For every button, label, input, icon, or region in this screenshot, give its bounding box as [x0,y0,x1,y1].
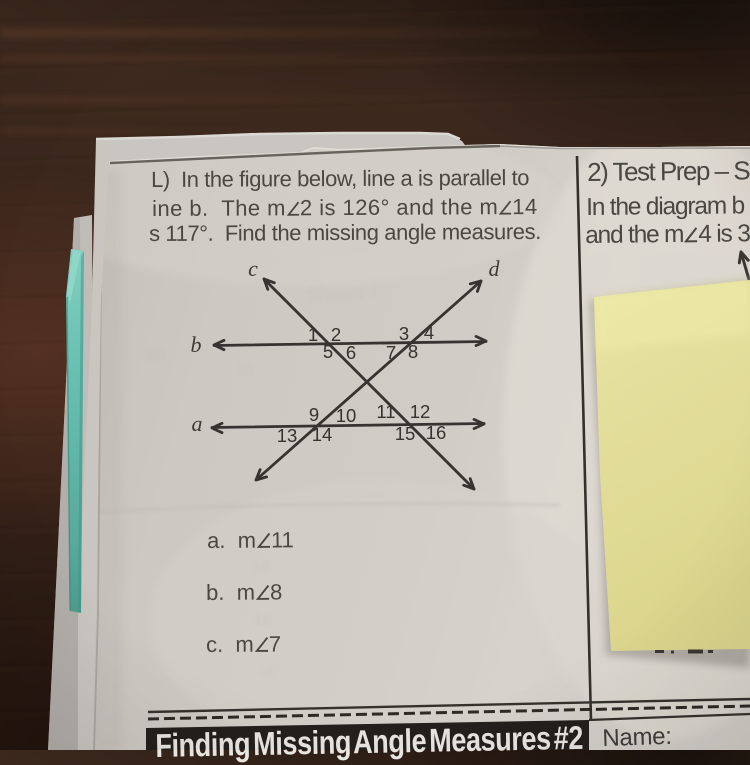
svg-text:9: 9 [309,404,319,425]
svg-text:13: 13 [277,425,298,446]
svg-text:a: a [192,411,203,436]
svg-text:c: c [248,256,258,281]
svg-text:50: 50 [146,345,165,364]
svg-text:14°: 14° [258,663,279,679]
svg-text:1: 1 [308,324,318,345]
svg-text:12: 12 [410,401,431,422]
svg-text:16: 16 [254,611,272,628]
svg-text:14: 14 [312,424,333,445]
svg-text:8: 8 [408,341,418,362]
svg-text:d: d [489,256,501,281]
svg-text:30: 30 [236,361,253,378]
svg-text:7: 7 [386,342,396,363]
svg-text:16: 16 [426,422,447,443]
svg-text:5: 5 [323,341,333,362]
svg-text:6: 6 [346,342,356,363]
svg-text:11: 11 [376,401,395,422]
svg-text:10: 10 [336,405,357,426]
svg-text:15: 15 [395,423,416,444]
svg-text:4: 4 [424,322,434,343]
svg-text:b: b [191,332,202,357]
svg-text:16: 16 [252,559,270,576]
